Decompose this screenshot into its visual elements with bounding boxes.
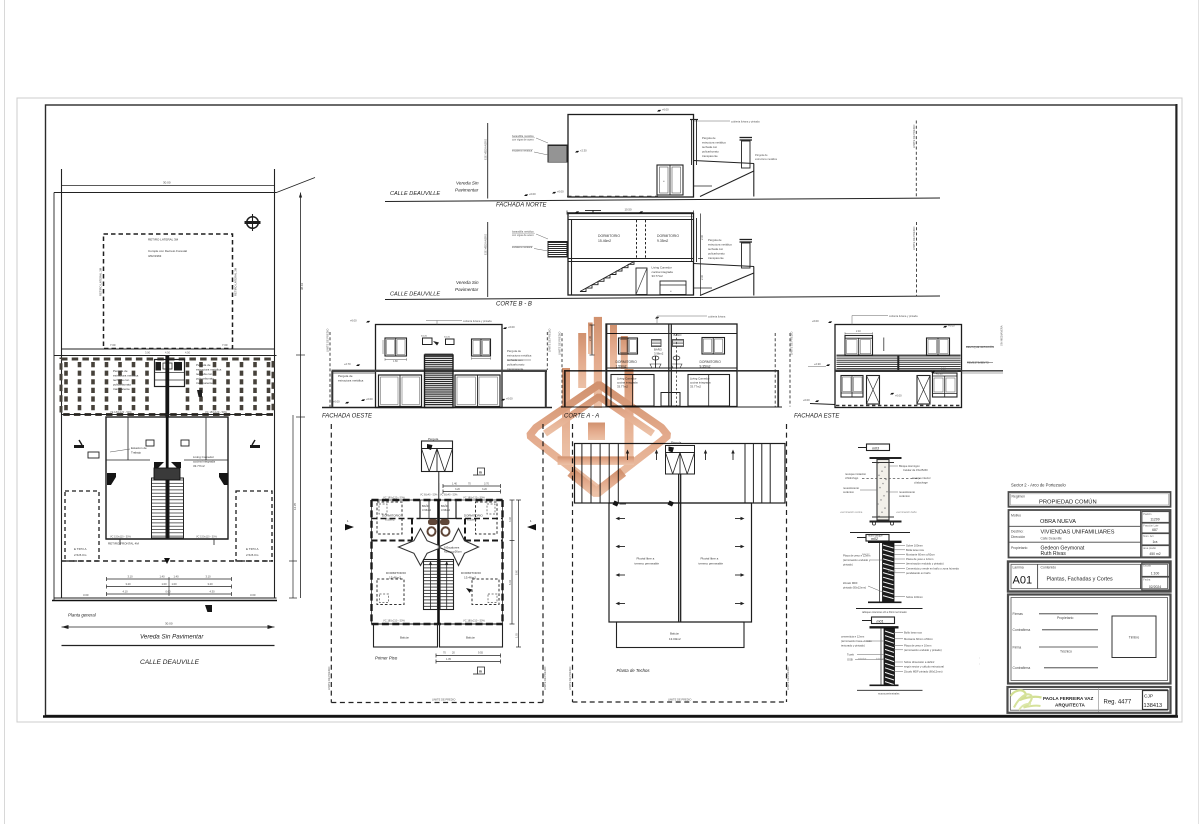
svg-text:Fecha: Fecha (1143, 579, 1151, 582)
svg-text:VC 150x110 - 50%: VC 150x110 - 50% (110, 536, 132, 539)
svg-text:escalera metálica: escalera metálica (512, 149, 533, 153)
svg-text:+2.30: +2.30 (580, 149, 587, 153)
svg-text:3/02/1963: 3/02/1963 (148, 254, 162, 258)
svg-text:cerámico: cerámico (843, 490, 854, 494)
svg-text:Cumple con Decreto Forestal: Cumple con Decreto Forestal (148, 249, 187, 253)
svg-text:policarbonato: policarbonato (196, 377, 214, 381)
svg-text:c/talochage: c/talochage (914, 481, 928, 485)
svg-text:tabiques interiores 22 a 30cm: tabiques interiores 22 a 30cm terminado (862, 611, 907, 614)
svg-text:Planta de Techos: Planta de Techos (617, 668, 651, 673)
svg-text:(terminación enduido y pintado: (terminación enduido y pintado) (906, 562, 944, 566)
svg-text:13.00m2: 13.00m2 (669, 637, 681, 641)
svg-text:Pérgola de: Pérgola de (113, 369, 128, 373)
svg-text:8.60: 8.60 (515, 570, 518, 575)
svg-text:CALLE DEAUVILLE: CALLE DEAUVILLE (390, 191, 440, 197)
svg-text:CALLE DEAUVILLE: CALLE DEAUVILLE (140, 659, 200, 666)
svg-text:Cementicia y verde en baño o z: Cementicia y verde en baño o zona húmeda (906, 566, 959, 570)
svg-text:VC 180x210 - 50%: VC 180x210 - 50% (463, 619, 485, 623)
svg-text:Fracción Lote: Fracción Lote (1143, 524, 1159, 527)
svg-text:Calle Deauville: Calle Deauville (1041, 536, 1062, 540)
svg-text:2.10: 2.10 (941, 368, 946, 371)
svg-text:4.50: 4.50 (165, 351, 171, 355)
svg-text:techada con: techada con (708, 247, 724, 251)
svg-text:Núm. Act: Núm. Act (1143, 535, 1153, 538)
svg-text:Propietario: Propietario (1057, 616, 1074, 620)
svg-text:3.00: 3.00 (145, 351, 151, 355)
svg-text:3.00: 3.00 (83, 593, 89, 597)
svg-text:cubierta liviana y pintada: cubierta liviana y pintada (463, 319, 492, 323)
svg-text:3.08: 3.08 (509, 517, 512, 522)
svg-text:1ra: 1ra (1153, 540, 1158, 544)
svg-text:estructura metálica: estructura metálica (113, 374, 139, 378)
svg-text:+6.00: +6.00 (508, 325, 515, 329)
svg-text:Pérgola de: Pérgola de (196, 363, 211, 367)
svg-text:9.55: 9.55 (478, 652, 483, 655)
svg-text:3.70: 3.70 (484, 483, 489, 486)
svg-text:+0.00: +0.00 (506, 397, 513, 401)
svg-text:LIMITE DE PREDIO: LIMITE DE PREDIO (543, 667, 547, 690)
svg-text:texturado y pintado): texturado y pintado) (841, 644, 865, 648)
svg-text:Padrón: Padrón (1143, 513, 1152, 516)
svg-text:EJE MEDIANERO: EJE MEDIANERO (484, 139, 488, 160)
svg-text:LIMITE DE PREDIO: LIMITE DE PREDIO (790, 332, 794, 355)
svg-text:02/2024: 02/2024 (1149, 585, 1161, 589)
svg-text:con vigas de acero: con vigas de acero (512, 233, 534, 237)
svg-text:LIMITE DE PREDIO: LIMITE DE PREDIO (786, 667, 790, 690)
svg-text:Pluvial libre a: Pluvial libre a (701, 557, 719, 561)
svg-text:2.30: 2.30 (700, 274, 704, 280)
svg-text:Dirección: Dirección (1011, 535, 1025, 539)
svg-text:Montante 60mm c/60cm: Montante 60mm c/60cm (906, 552, 936, 556)
svg-text:Plantas, Fachadas y Cortes: Plantas, Fachadas y Cortes (1047, 577, 1114, 583)
svg-text:4.50: 4.50 (185, 351, 191, 355)
svg-text:según sector y cálculo estruct: según sector y cálculo estructural (904, 665, 944, 669)
svg-text:LIMITE DE PREDIO: LIMITE DE PREDIO (568, 667, 572, 690)
svg-text:1.40: 1.40 (452, 483, 457, 486)
svg-text:3.96m2: 3.96m2 (441, 508, 450, 512)
svg-text:escalera metálica: escalera metálica (512, 245, 533, 249)
svg-text:Sobre 100mm: Sobre 100mm (906, 595, 924, 599)
svg-text:+2.30: +2.30 (814, 362, 821, 366)
svg-text:estructura metálica: estructura metálica (507, 354, 532, 358)
svg-text:1.40: 1.40 (173, 575, 179, 579)
svg-text:VC 180x120 - 50%: VC 180x120 - 50% (205, 410, 227, 414)
svg-text:VIVIENDAS UNIFAMILIARES: VIVIENDAS UNIFAMILIARES (1041, 530, 1115, 536)
svg-text:PROPIEDAD COMÚN: PROPIEDAD COMÚN (1039, 498, 1097, 505)
svg-text:+0.00: +0.00 (333, 400, 340, 404)
svg-text:DORMITORIO: DORMITORIO (657, 234, 679, 238)
svg-text:30.00: 30.00 (165, 622, 173, 626)
svg-text:pintado (90x12mm): pintado (90x12mm) (843, 586, 866, 590)
svg-text:1.00: 1.00 (161, 582, 167, 586)
svg-text:(terminación enduido y: (terminación enduido y (843, 558, 871, 562)
svg-text:m03: m03 (872, 446, 879, 450)
svg-text:revoque interior: revoque interior (912, 476, 931, 480)
svg-text:revestimiento: revestimiento (899, 490, 915, 494)
svg-text:7.00: 7.00 (222, 343, 228, 347)
svg-text:Balcón: Balcón (400, 636, 410, 640)
svg-text:m01: m01 (877, 619, 884, 623)
svg-text:Pérgola de: Pérgola de (702, 136, 716, 140)
svg-text:Motivo: Motivo (1011, 514, 1021, 518)
svg-text:7.00: 7.00 (110, 343, 116, 347)
svg-text:LIMITE DE PREDIO: LIMITE DE PREDIO (548, 329, 552, 352)
svg-text:11299: 11299 (1150, 518, 1159, 522)
svg-text:Estación de: Estación de (131, 446, 147, 450)
svg-text:Técnico: Técnico (1060, 649, 1072, 653)
svg-text:2.5x5.0m: 2.5x5.0m (246, 553, 259, 557)
svg-text:m: m (479, 670, 482, 674)
svg-text:A01: A01 (1013, 575, 1033, 587)
svg-text:Planta general: Planta general (68, 613, 97, 618)
svg-text:LIMITE DE PREDIO: LIMITE DE PREDIO (668, 698, 691, 702)
svg-text:Pérgola de: Pérgola de (708, 238, 722, 242)
svg-text:DORMITORIO: DORMITORIO (598, 234, 620, 238)
svg-text:Vereda Sin: Vereda Sin (456, 280, 479, 285)
svg-text:Montante 60mm c/60cm: Montante 60mm c/60cm (904, 637, 934, 641)
svg-text:+terminación baño: +terminación baño (896, 511, 917, 514)
svg-text:OBRA NUEVA: OBRA NUEVA (1040, 519, 1076, 525)
svg-text:+6.00: +6.00 (948, 324, 955, 328)
svg-text:LIMITE DE PREDIO: LIMITE DE PREDIO (558, 332, 562, 355)
svg-text:Pérgola: Pérgola (428, 437, 439, 441)
svg-text:FACHADA NORTE: FACHADA NORTE (496, 203, 548, 209)
svg-text:60x40: 60x40 (444, 337, 451, 339)
svg-text:transparente: transparente (196, 381, 213, 385)
svg-text:Sobre 100mm: Sobre 100mm (906, 544, 924, 548)
svg-text:VC 60x40 - 50%: VC 60x40 - 50% (420, 494, 438, 497)
svg-text:barandilla metálica: barandilla metálica (512, 230, 534, 234)
svg-text:450 m2: 450 m2 (1149, 552, 1160, 556)
svg-text:Escala: Escala (1143, 565, 1151, 568)
svg-text:EJE MEDIANERO: EJE MEDIANERO (484, 234, 488, 255)
svg-text:transparente: transparente (702, 154, 718, 158)
svg-text:3.96m2: 3.96m2 (422, 508, 431, 512)
svg-text:policarbonato: policarbonato (113, 383, 131, 387)
svg-text:c/hidrofugo: c/hidrofugo (845, 476, 859, 480)
svg-text:muros perimetrales: muros perimetrales (878, 693, 900, 696)
svg-text:+6.00: +6.00 (812, 319, 819, 323)
svg-text:Pérgola de: Pérgola de (507, 349, 521, 353)
svg-text:Primer Piso: Primer Piso (375, 656, 398, 661)
svg-text:LIMITE DE PREDIO: LIMITE DE PREDIO (326, 329, 330, 352)
svg-text:38.63: 38.63 (300, 283, 304, 290)
svg-text:Firma: Firma (1013, 646, 1022, 650)
svg-text:estructura metálica: estructura metálica (702, 141, 726, 145)
svg-text:cubierta liviana y pintada: cubierta liviana y pintada (889, 314, 918, 318)
svg-text:Balcón: Balcón (670, 632, 680, 636)
svg-text:CJP: CJP (1144, 694, 1153, 700)
svg-text:Pavimentar: Pavimentar (455, 188, 479, 193)
svg-text:3.00: 3.00 (250, 593, 256, 597)
svg-text:1.05: 1.05 (515, 633, 518, 638)
svg-text:Pavimentar: Pavimentar (455, 287, 479, 292)
svg-text:33.77m2: 33.77m2 (193, 464, 205, 468)
svg-text:RETIRO LATERAL 3M: RETIRO LATERAL 3M (99, 267, 103, 296)
svg-text:Sector 2 - Arco de Portezuelo: Sector 2 - Arco de Portezuelo (1011, 483, 1066, 488)
svg-text:VC 180x210 - 50%: VC 180x210 - 50% (383, 619, 405, 623)
svg-text:estructura metálica: estructura metálica (708, 243, 732, 247)
svg-text:Sobre dimensión a definir: Sobre dimensión a definir (904, 660, 935, 664)
svg-text:Zócalo MDF pintado (60x12mm): Zócalo MDF pintado (60x12mm) (904, 669, 943, 673)
svg-text:Firmas: Firmas (1013, 612, 1024, 616)
svg-text:DORMITORIO: DORMITORIO (386, 571, 407, 575)
svg-text:VC 180x120 - 50%: VC 180x120 - 50% (383, 496, 405, 500)
svg-text:3.20: 3.20 (455, 488, 460, 491)
svg-text:Reg. 4477: Reg. 4477 (1104, 700, 1132, 706)
svg-text:1.40: 1.40 (159, 575, 165, 579)
svg-text:m: m (479, 471, 482, 475)
svg-text:+0.00: +0.00 (529, 192, 536, 196)
svg-text:1.80: 1.80 (393, 360, 398, 363)
svg-text:E TIPO A: E TIPO A (246, 547, 258, 551)
svg-text:con vigas de acero: con vigas de acero (512, 138, 534, 142)
svg-text:interior: interior (888, 570, 896, 573)
svg-text:m02: m02 (871, 537, 878, 541)
svg-text:Placa de yeso e 10mm: Placa de yeso e 10mm (904, 643, 932, 647)
svg-text:(terminación enduido y pintado: (terminación enduido y pintado) (904, 648, 942, 652)
svg-text:+0.00: +0.00 (557, 190, 564, 194)
svg-text:687: 687 (1152, 528, 1158, 532)
svg-text:Placa de yeso e 12mm: Placa de yeso e 12mm (906, 557, 934, 561)
svg-text:+2.30: +2.30 (936, 372, 943, 376)
svg-text:3.20: 3.20 (125, 582, 131, 586)
svg-text:9.35m2: 9.35m2 (700, 365, 711, 369)
svg-text:BAÑO: BAÑO (674, 332, 683, 337)
svg-text:+6.00: +6.00 (350, 319, 357, 323)
svg-text:Pluvial libre a: Pluvial libre a (637, 557, 655, 561)
svg-text:Celular de 15x25x50: Celular de 15x25x50 (903, 468, 928, 472)
svg-text:+0.00: +0.00 (803, 398, 810, 402)
svg-text:techada con: techada con (196, 372, 213, 376)
svg-text:E TIPO A: E TIPO A (74, 547, 86, 551)
svg-text:+terminación cocina: +terminación cocina (840, 511, 863, 514)
svg-text:6.34: 6.34 (509, 580, 512, 585)
svg-text:138413: 138413 (1144, 703, 1163, 709)
svg-text:14.35: 14.35 (293, 503, 297, 510)
svg-text:+0.00: +0.00 (366, 397, 373, 401)
svg-text:estructura metálica: estructura metálica (196, 368, 222, 372)
svg-text:Pérgola de: Pérgola de (755, 153, 768, 157)
svg-text:techada con: techada con (113, 378, 130, 382)
svg-text:revestimiento: revestimiento (843, 486, 859, 490)
svg-text:+2.70: +2.70 (344, 362, 351, 366)
svg-text:VE 180x120 - 50%: VE 180x120 - 50% (110, 410, 132, 414)
svg-text:interior: interior (876, 658, 884, 661)
svg-text:10.50: 10.50 (625, 208, 632, 212)
svg-text:cubierta liviana y pintada: cubierta liviana y pintada (731, 120, 760, 124)
svg-text:FACHADA ESTE: FACHADA ESTE (794, 414, 840, 420)
svg-text:transparente: transparente (507, 367, 524, 371)
svg-text:Bolla lana roca: Bolla lana roca (906, 548, 924, 552)
svg-text:33.77m2: 33.77m2 (690, 385, 701, 389)
svg-text:estructura metálica: estructura metálica (338, 379, 364, 383)
svg-text:3.20: 3.20 (207, 582, 213, 586)
svg-text:Propietario: Propietario (1011, 546, 1028, 550)
svg-text:policarbonato: policarbonato (708, 252, 725, 256)
svg-text:h16cm p26cm: h16cm p26cm (444, 550, 462, 554)
svg-text:30.00: 30.00 (163, 181, 171, 185)
svg-text:2.5x5.0m: 2.5x5.0m (74, 553, 87, 557)
svg-text:9.35m2: 9.35m2 (657, 239, 668, 243)
svg-text:policarbonato: policarbonato (507, 363, 525, 367)
svg-text:techada con: techada con (702, 145, 718, 149)
svg-text:terreno permeable: terreno permeable (699, 562, 724, 566)
svg-text:+6.00: +6.00 (662, 108, 669, 112)
svg-text:Contrafirma: Contrafirma (1013, 628, 1031, 632)
svg-text:RETIRO LATERAL 3M: RETIRO LATERAL 3M (234, 267, 238, 296)
svg-text:Contenido: Contenido (1041, 565, 1057, 569)
svg-text:barandilla metálica: barandilla metálica (512, 134, 534, 138)
svg-text:VC 150x110 - 50%: VC 150x110 - 50% (196, 536, 218, 539)
svg-text:1:100: 1:100 (1151, 572, 1160, 576)
svg-text:Vereda Sin Pavimentar: Vereda Sin Pavimentar (140, 634, 204, 641)
svg-text:33.77m2: 33.77m2 (652, 274, 664, 278)
svg-text:2.30: 2.30 (700, 234, 704, 240)
svg-text:estructura metálica: estructura metálica (755, 157, 777, 161)
svg-text:Pérgola: Pérgola (671, 441, 682, 445)
svg-text:0.60: 0.60 (165, 590, 171, 594)
svg-text:VC 180x120 - 50%: VC 180x120 - 50% (463, 496, 485, 500)
svg-text:DORMITORIO: DORMITORIO (700, 360, 722, 364)
svg-text:Trabajo: Trabajo (131, 451, 141, 455)
svg-text:LIMITE DE PREDIO: LIMITE DE PREDIO (912, 125, 916, 148)
svg-text:Balcón: Balcón (466, 636, 476, 640)
svg-text:Living Comedor: Living Comedor (193, 455, 214, 459)
svg-text:PAOLA FERREIRA VAZ: PAOLA FERREIRA VAZ (1043, 696, 1093, 701)
svg-text:60x40: 60x40 (421, 336, 428, 338)
svg-text:15.46m2: 15.46m2 (598, 239, 611, 243)
svg-text:policarbonato: policarbonato (702, 150, 719, 154)
svg-text:LIMITE DE PREDIO: LIMITE DE PREDIO (327, 667, 331, 690)
svg-text:cementicia e 12mm: cementicia e 12mm (841, 635, 865, 639)
svg-text:Zócalo MDF: Zócalo MDF (843, 581, 858, 585)
svg-text:3.10: 3.10 (127, 575, 133, 579)
svg-text:transparente: transparente (113, 387, 130, 391)
svg-text:DORMITORIO: DORMITORIO (461, 571, 482, 575)
svg-text:CORTE B - B: CORTE B - B (496, 302, 532, 308)
svg-text:RETIRO FRONTAL 4M: RETIRO FRONTAL 4M (108, 542, 139, 546)
svg-text:Bloque Hormigon: Bloque Hormigon (899, 464, 920, 468)
svg-text:Contrafirma: Contrafirma (1013, 666, 1031, 670)
svg-text:SIN MEDIANERA: SIN MEDIANERA (1000, 325, 1004, 346)
svg-text:pendelando en baño: pendelando en baño (906, 571, 931, 575)
svg-text:cerámico: cerámico (899, 494, 910, 498)
svg-text:4.10: 4.10 (122, 590, 128, 594)
svg-text:LIMITE DE PREDIO: LIMITE DE PREDIO (432, 698, 455, 702)
svg-text:ARQUITECTA: ARQUITECTA (1055, 703, 1085, 708)
svg-text:4.30: 4.30 (209, 590, 215, 594)
svg-text:Lamina: Lamina (1013, 565, 1024, 569)
svg-text:Destino:: Destino: (1011, 530, 1023, 534)
svg-text:Vereda Sin: Vereda Sin (456, 181, 479, 186)
svg-text:transparente: transparente (708, 256, 724, 260)
svg-text:cocina integrada: cocina integrada (193, 460, 215, 464)
svg-text:3.10: 3.10 (205, 575, 211, 579)
svg-text:RETIRO LATERAL 3M: RETIRO LATERAL 3M (148, 238, 179, 242)
svg-text:Bollo lana roca: Bollo lana roca (904, 631, 922, 635)
svg-text:Pérgola de: Pérgola de (338, 374, 353, 378)
svg-text:1.00: 1.00 (171, 582, 177, 586)
svg-text:LIMITE DE PREDIO: LIMITE DE PREDIO (912, 227, 916, 250)
svg-text:Regimen: Regimen (1012, 495, 1026, 499)
svg-text:cubierta liviana: cubierta liviana (708, 315, 726, 319)
svg-text:3.96m2: 3.96m2 (654, 352, 664, 356)
svg-text:área predio: área predio (1143, 547, 1156, 550)
svg-text:OSB: OSB (847, 658, 853, 662)
svg-text:pintado): pintado) (843, 563, 853, 567)
svg-text:CALLE DEAUVILLE: CALLE DEAUVILLE (390, 292, 440, 298)
svg-text:terreno permeable: terreno permeable (635, 562, 660, 566)
svg-text:Placa de yeso e 12mm: Placa de yeso e 12mm (843, 554, 871, 558)
svg-text:VC 60x40 - 50%: VC 60x40 - 50% (440, 494, 458, 497)
svg-text:2.40: 2.40 (856, 330, 861, 333)
svg-text:exterior: exterior (858, 658, 867, 661)
svg-text:3.20: 3.20 (482, 488, 487, 491)
svg-text:revoque imitación: revoque imitación (845, 472, 867, 476)
svg-text:Ruth Rivas: Ruth Rivas (1041, 551, 1067, 557)
svg-text:1.05: 1.05 (446, 658, 451, 661)
svg-text:FACHADA OESTE: FACHADA OESTE (322, 414, 373, 420)
svg-text:Timbre: Timbre (1129, 635, 1140, 639)
svg-text:+0.00: +0.00 (895, 394, 902, 398)
svg-text:Tyvek: Tyvek (847, 653, 855, 657)
